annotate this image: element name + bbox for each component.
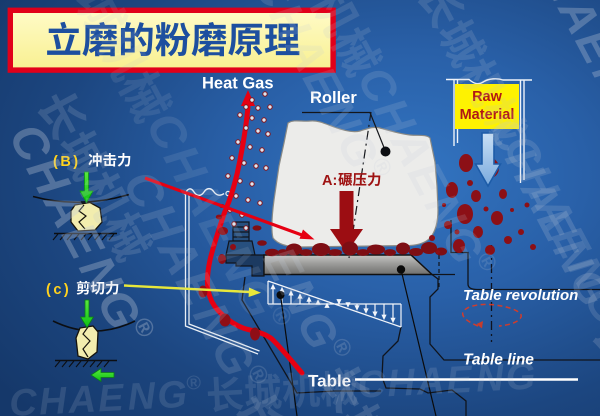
svg-text:®: ® xyxy=(186,372,202,395)
svg-text:G: G xyxy=(156,374,189,416)
svg-text:A: A xyxy=(66,378,98,416)
svg-text:Table revolution: Table revolution xyxy=(463,287,578,304)
svg-text:G: G xyxy=(505,355,538,399)
svg-text:N: N xyxy=(127,375,158,416)
svg-text:A:: A: xyxy=(322,173,337,189)
svg-text:C: C xyxy=(8,382,39,416)
svg-text:(c): (c) xyxy=(46,282,71,298)
svg-text:H: H xyxy=(38,380,69,416)
svg-text:Heat Gas: Heat Gas xyxy=(202,75,274,93)
svg-text:E: E xyxy=(97,377,126,416)
svg-text:A: A xyxy=(415,360,447,404)
svg-text:C: C xyxy=(357,363,388,406)
svg-text:H: H xyxy=(386,362,417,405)
svg-text:N: N xyxy=(475,357,506,400)
svg-text:E: E xyxy=(445,359,474,402)
